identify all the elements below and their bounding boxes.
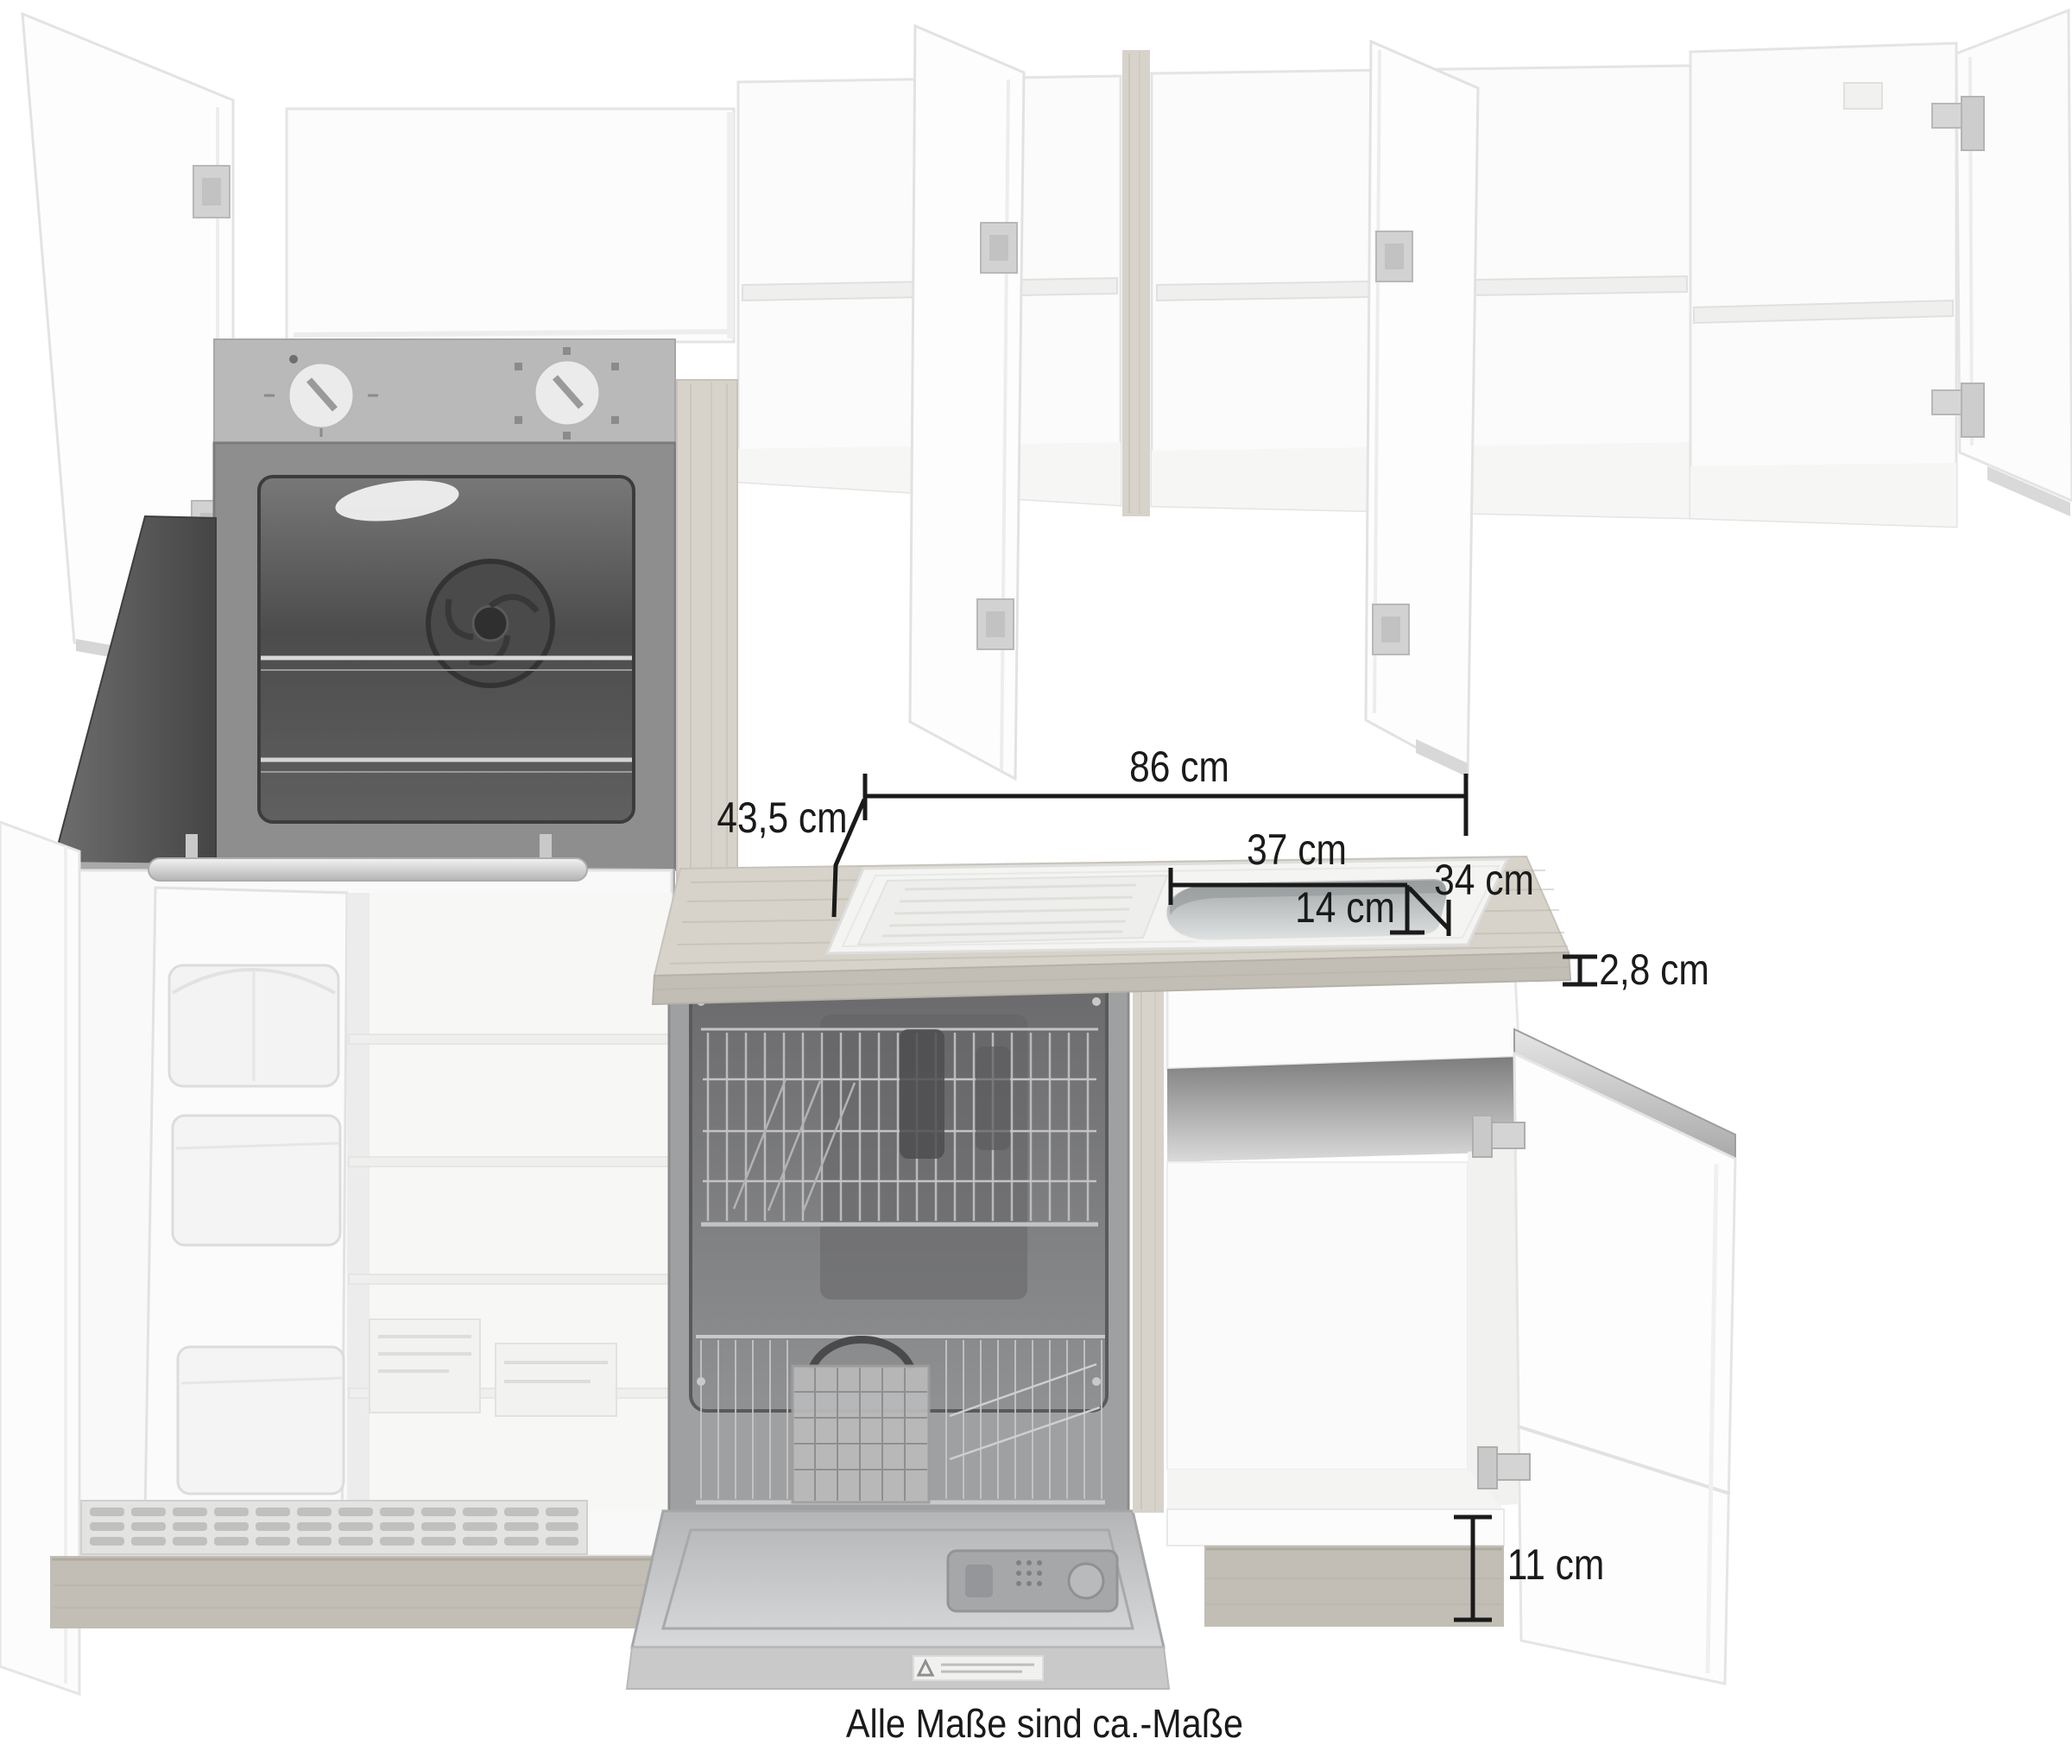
dim-label-plinth-height: 11 cm — [1507, 1540, 1605, 1590]
dim-label-total-width: 86 cm — [1129, 742, 1229, 792]
fridge-shelf — [349, 1034, 670, 1044]
wall-cabinet-left-door-open — [910, 26, 1024, 779]
oven-control-panel — [214, 339, 675, 443]
fridge-door-bottle-rack — [178, 1347, 344, 1494]
footer-note: Alle Maße sind ca.-Maße — [846, 1700, 1243, 1747]
wall-cabinet-right — [1690, 43, 1956, 527]
hinge-icon — [1376, 231, 1412, 281]
fridge-shelf — [349, 1157, 670, 1167]
fridge-vent-grille — [81, 1501, 587, 1554]
fridge-door-open — [145, 888, 347, 1539]
sink-cabinet-plinth — [1204, 1546, 1504, 1627]
fridge-plinth — [50, 1556, 675, 1628]
fridge — [0, 822, 675, 1694]
oven-fan-icon — [428, 561, 553, 686]
warning-label — [913, 1656, 1043, 1680]
wall-cabinet-middle-door-open — [1366, 41, 1478, 777]
sink-cabinet-interior — [1167, 1147, 1518, 1546]
oak-side-panel — [677, 380, 737, 939]
sink-cabinet-opening-shadow — [1167, 1057, 1519, 1162]
fridge-shelf — [349, 1274, 670, 1284]
sink-drainer — [858, 876, 1167, 945]
fridge-interior — [347, 893, 672, 1511]
dishwasher-door-edge — [627, 1647, 1169, 1689]
oak-divider-strip — [1122, 50, 1150, 516]
oak-side-strip — [1133, 950, 1164, 1513]
dim-label-total-depth: 43,5 cm — [717, 793, 847, 843]
product-image-kitchen-unit: 86 cm 43,5 cm 37 cm 34 cm 14 cm 2,8 cm 1… — [0, 0, 2072, 1764]
dishwasher-door-open — [627, 1511, 1169, 1689]
dim-label-worktop-thickness: 2,8 cm — [1599, 945, 1709, 995]
kitchen-illustration — [0, 0, 2072, 1764]
tall-unit-upper-cabinet — [287, 109, 734, 342]
detergent-dispenser — [948, 1551, 1117, 1611]
dishwasher — [627, 955, 1169, 1689]
dim-label-sink-width: 34 cm — [1434, 855, 1534, 905]
fridge-door-bin — [169, 965, 338, 1086]
hinge-icon — [977, 599, 1014, 649]
hinge-icon — [981, 223, 1017, 273]
countertop — [653, 857, 1570, 1004]
sink-base-cabinet — [1133, 950, 1735, 1684]
dim-label-bowl-depth: 14 cm — [1295, 882, 1395, 933]
dim-label-sink-length: 37 cm — [1247, 825, 1347, 875]
hinge-icon — [193, 166, 230, 218]
fridge-door-bin — [173, 1116, 340, 1245]
hinge-icon — [1373, 604, 1409, 654]
